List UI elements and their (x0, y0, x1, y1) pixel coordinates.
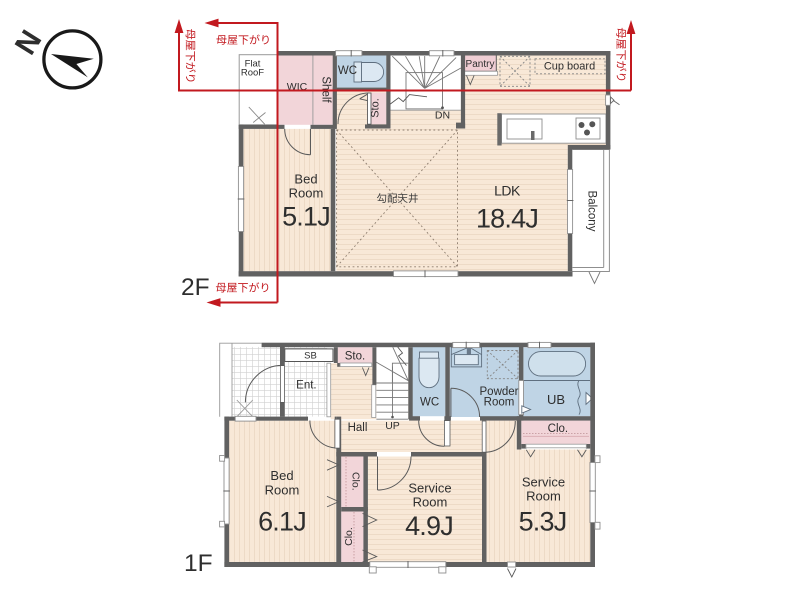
svg-text:Clo.: Clo. (548, 423, 568, 435)
svg-text:Room: Room (289, 186, 324, 201)
svg-text:5.1J: 5.1J (282, 202, 330, 232)
svg-text:Clo.: Clo. (343, 527, 355, 546)
svg-text:6.1J: 6.1J (258, 507, 306, 537)
svg-text:4.9J: 4.9J (405, 511, 453, 541)
svg-text:WC: WC (338, 65, 357, 77)
svg-text:Room: Room (526, 489, 561, 504)
svg-text:RooF: RooF (241, 68, 264, 79)
svg-text:1F: 1F (184, 550, 213, 577)
svg-text:LDK: LDK (494, 183, 521, 199)
svg-text:Service: Service (408, 481, 451, 496)
svg-text:UB: UB (547, 392, 565, 407)
svg-text:Sto.: Sto. (370, 98, 382, 118)
svg-text:Room: Room (413, 495, 448, 510)
svg-text:Ent.: Ent. (296, 380, 316, 392)
svg-text:Pantry: Pantry (466, 59, 495, 70)
svg-text:Balcony: Balcony (586, 191, 598, 232)
svg-text:Room: Room (484, 397, 515, 409)
svg-text:Bed: Bed (270, 468, 293, 483)
svg-text:2F: 2F (181, 274, 210, 301)
svg-text:Clo.: Clo. (349, 472, 361, 491)
svg-text:DN: DN (435, 110, 450, 122)
svg-text:UP: UP (385, 420, 400, 432)
svg-text:Service: Service (522, 475, 565, 490)
svg-text:Bed: Bed (294, 172, 317, 187)
svg-text:SB: SB (304, 351, 317, 362)
svg-text:18.4J: 18.4J (476, 204, 538, 234)
svg-text:Hall: Hall (348, 422, 368, 434)
svg-text:Sto.: Sto. (345, 351, 365, 363)
svg-text:Cup board: Cup board (544, 61, 595, 73)
svg-text:WC: WC (420, 397, 439, 409)
svg-text:5.3J: 5.3J (519, 507, 567, 537)
svg-text:Room: Room (265, 483, 300, 498)
